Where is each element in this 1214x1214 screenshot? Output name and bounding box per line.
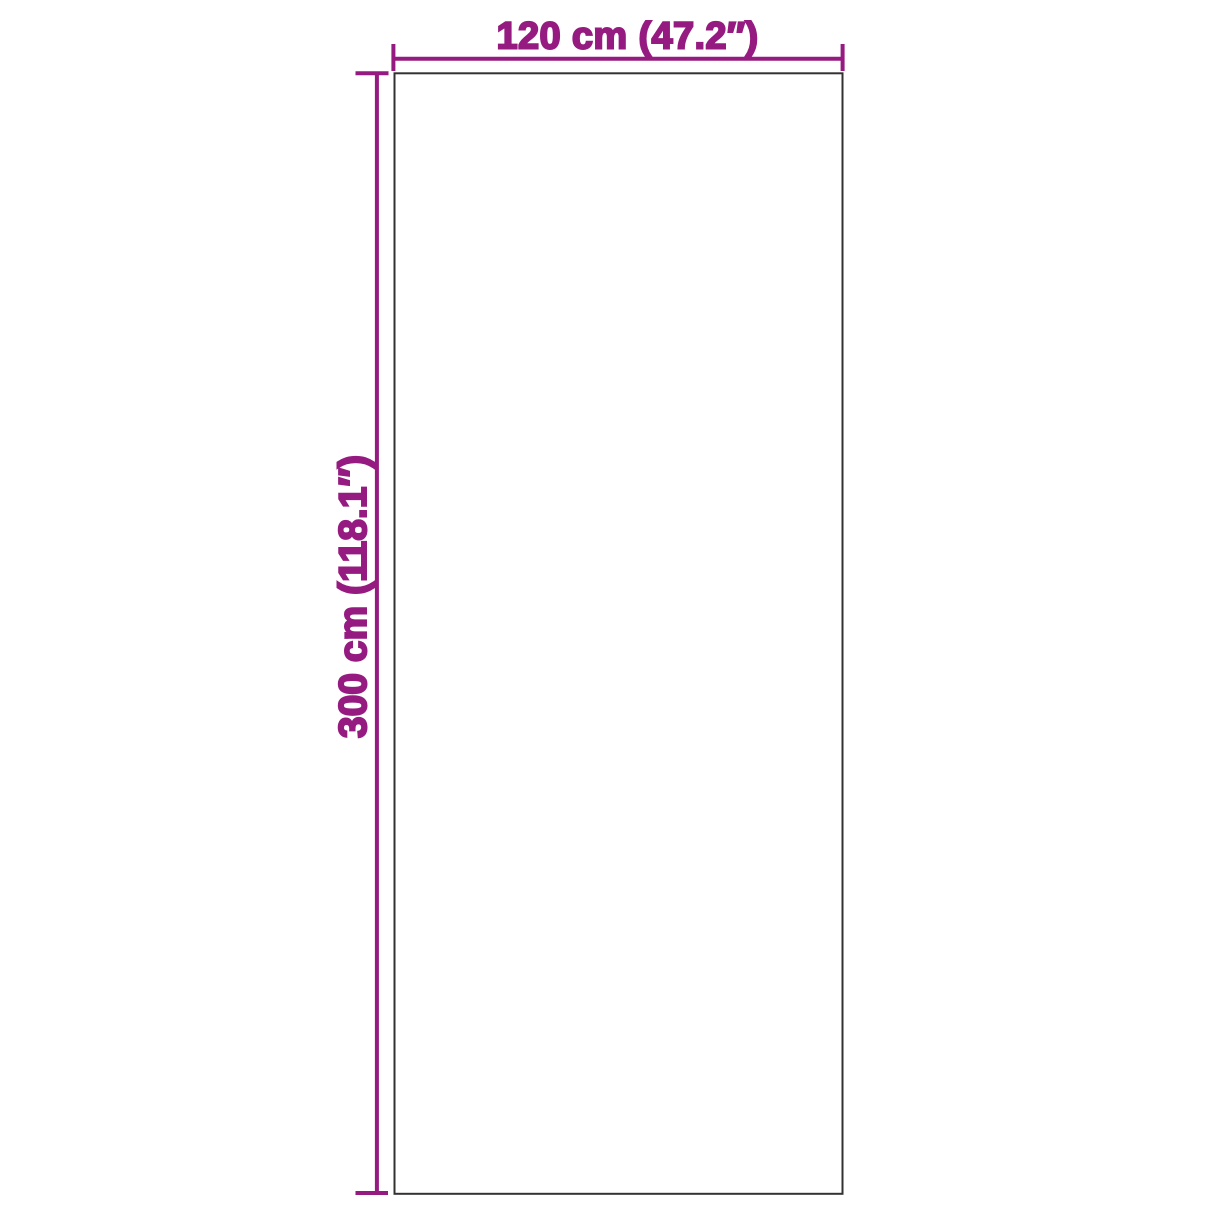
- svg-text:120 cm (47.2″): 120 cm (47.2″): [497, 16, 759, 58]
- svg-text:300 cm (118.1″): 300 cm (118.1″): [332, 455, 375, 738]
